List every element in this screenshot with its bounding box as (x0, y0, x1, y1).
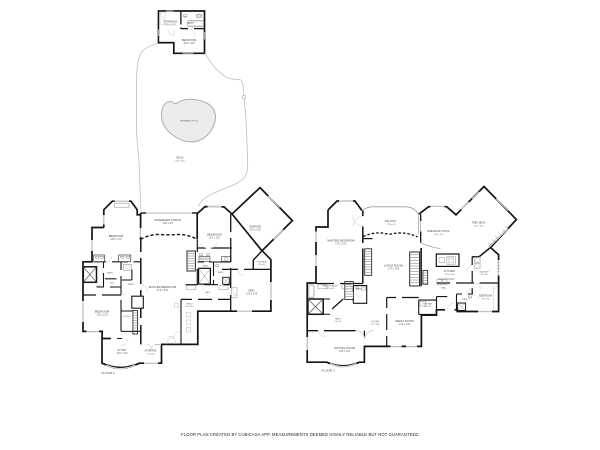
svg-text:BATH: BATH (335, 318, 341, 321)
svg-text:5'0 x 8'0: 5'0 x 8'0 (480, 274, 488, 276)
svg-text:FOYER: FOYER (372, 321, 380, 323)
svg-text:7'0 x 7'0: 7'0 x 7'0 (334, 321, 342, 323)
svg-text:HALL: HALL (441, 286, 447, 289)
svg-text:17'0 x 23'0: 17'0 x 23'0 (157, 289, 169, 292)
svg-text:11'0 x 6'0: 11'0 x 6'0 (326, 288, 335, 290)
svg-text:MASTER BATH: MASTER BATH (323, 284, 338, 287)
svg-text:17'0 x 21'0: 17'0 x 21'0 (335, 242, 347, 245)
svg-text:17'0 x 20'0: 17'0 x 20'0 (388, 268, 400, 271)
svg-text:7'0 x 6'0: 7'0 x 6'0 (147, 354, 155, 356)
svg-text:LAUNDRY: LAUNDRY (479, 271, 490, 274)
svg-text:13'0 x 17'0: 13'0 x 17'0 (110, 238, 122, 241)
svg-text:FLOOR PLAN CREATED BY CUBICASA: FLOOR PLAN CREATED BY CUBICASA APP. MEAS… (181, 432, 420, 437)
svg-text:FLOOR 1: FLOOR 1 (102, 371, 116, 375)
svg-text:BATH: BATH (128, 283, 134, 286)
svg-text:HALL: HALL (205, 291, 211, 294)
svg-text:12'0 x 10'0: 12'0 x 10'0 (434, 234, 444, 236)
svg-text:10'0 x 11'6: 10'0 x 11'6 (183, 42, 195, 45)
svg-text:BATH: BATH (462, 298, 468, 301)
svg-text:WIC: WIC (110, 282, 115, 284)
svg-text:14'0 x 14'0: 14'0 x 14'0 (474, 226, 484, 228)
svg-text:12'0 x 14'0: 12'0 x 14'0 (399, 323, 411, 326)
svg-text:11'6 x 11'0: 11'6 x 11'0 (96, 314, 108, 317)
svg-text:13'0 x 13'5: 13'0 x 13'5 (246, 293, 258, 296)
svg-text:500 x 410: 500 x 410 (175, 161, 185, 163)
svg-text:PATIO: PATIO (187, 303, 193, 306)
svg-text:6'0 x 10'0: 6'0 x 10'0 (371, 324, 380, 326)
svg-text:8'0 x 10'4: 8'0 x 10'4 (165, 23, 176, 26)
svg-text:6'0 x 4'0: 6'0 x 4'0 (258, 264, 266, 266)
svg-text:5'0 x 4'0: 5'0 x 4'0 (424, 306, 432, 308)
svg-text:13'6 x 11'0: 13'6 x 11'0 (339, 350, 351, 353)
svg-text:FOYER: FOYER (123, 316, 131, 318)
svg-text:5'0 x 14'0: 5'0 x 14'0 (185, 306, 194, 308)
svg-text:DECK: DECK (176, 156, 183, 159)
svg-text:BATH: BATH (356, 288, 362, 291)
svg-text:13'0 x 13'0: 13'0 x 13'0 (445, 274, 455, 276)
svg-text:17'0 x 6'0: 17'0 x 6'0 (387, 224, 396, 226)
svg-text:18'4 x 8'0: 18'4 x 8'0 (163, 222, 174, 225)
svg-text:BATH: BATH (218, 271, 224, 274)
svg-text:BEDROOM: BEDROOM (479, 296, 492, 298)
svg-text:12'0 x 11'0: 12'0 x 11'0 (116, 352, 128, 355)
svg-text:SWIMMING POOL: SWIMMING POOL (180, 121, 199, 123)
svg-text:WET BAR: WET BAR (423, 302, 433, 305)
svg-text:FLOOR 2: FLOOR 2 (322, 368, 336, 372)
svg-text:BATH: BATH (107, 272, 113, 275)
svg-text:STORAGE: STORAGE (145, 350, 157, 353)
svg-text:11'0 x 12'0: 11'0 x 12'0 (209, 237, 221, 240)
svg-text:BREAKFAST NOOK: BREAKFAST NOOK (427, 230, 450, 233)
svg-text:BATH: BATH (96, 285, 102, 288)
svg-text:8'0 x 9'0: 8'0 x 9'0 (482, 299, 490, 301)
svg-text:KITCHEN: KITCHEN (444, 270, 455, 273)
svg-text:BALCONY: BALCONY (385, 220, 397, 223)
svg-text:BATH: BATH (188, 22, 194, 25)
svg-text:22'0 x 21'0: 22'0 x 21'0 (249, 229, 261, 232)
svg-text:STORAGE: STORAGE (257, 261, 267, 264)
svg-text:TREX DECK: TREX DECK (471, 223, 485, 225)
svg-text:BATH: BATH (203, 265, 209, 268)
